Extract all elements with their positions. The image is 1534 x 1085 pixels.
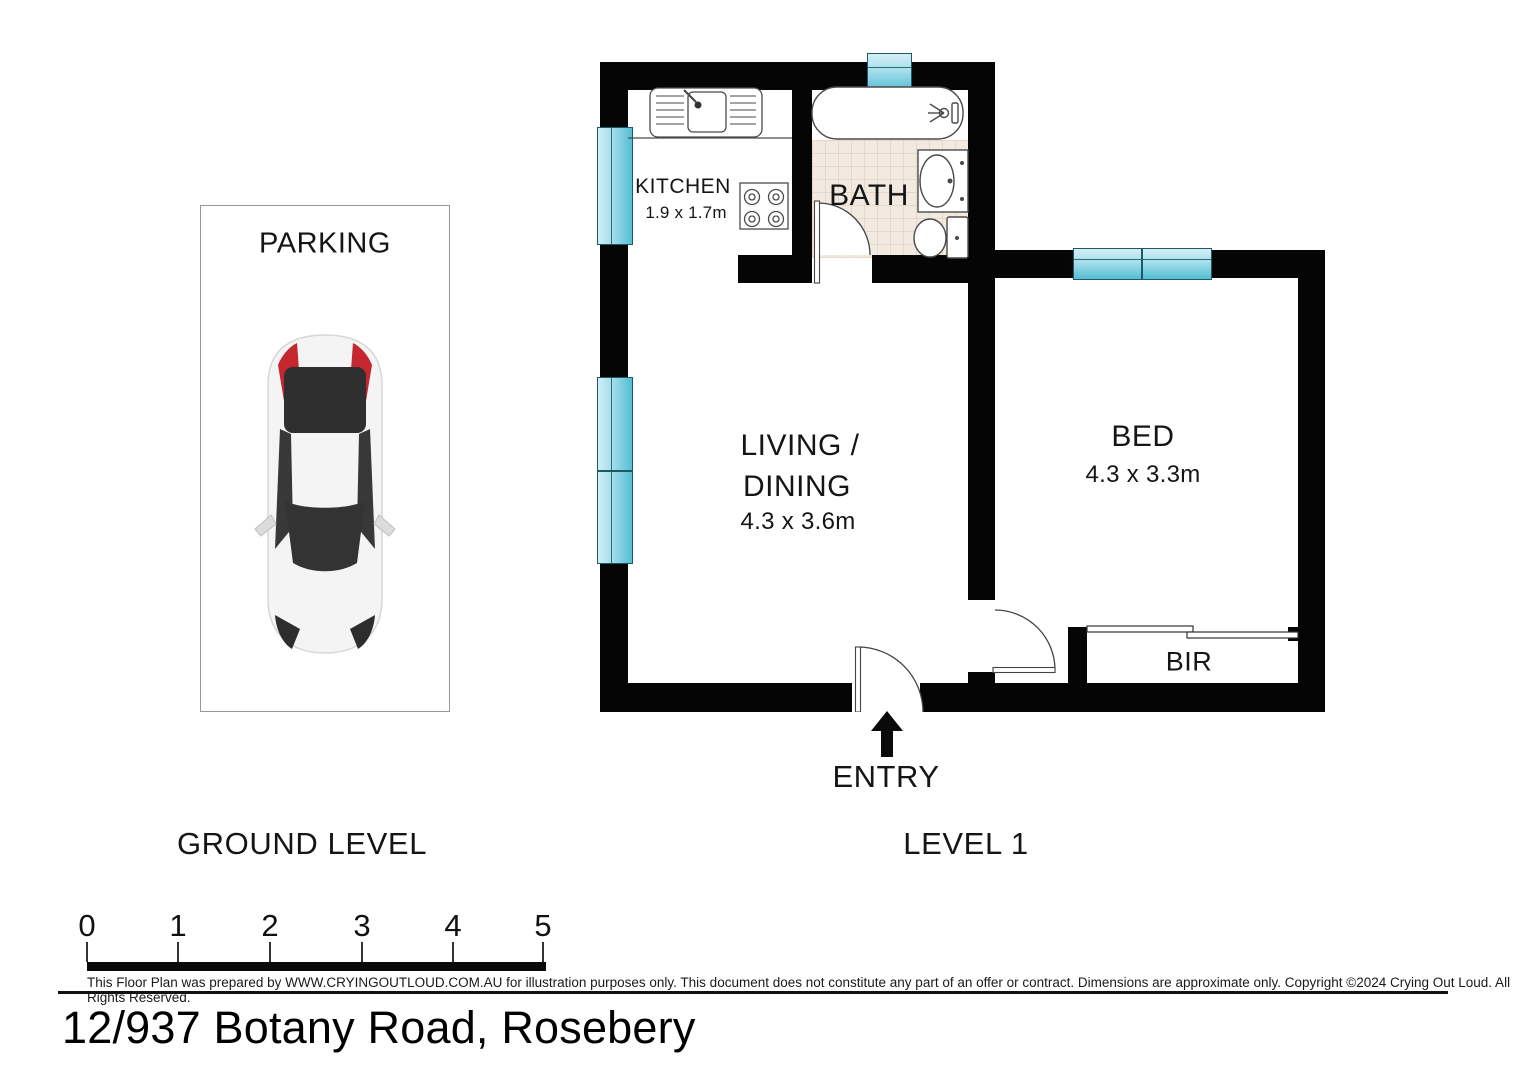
scale-tick — [361, 942, 363, 962]
floorplan-level1: KITCHEN 1.9 x 1.7m BATH LIVING / DINING … — [600, 62, 1325, 712]
parking-space: PARKING — [200, 205, 450, 712]
scale-tick — [269, 942, 271, 962]
car-rear-window — [284, 367, 366, 433]
entry-door — [856, 647, 924, 712]
scale-number-1: 1 — [169, 908, 186, 944]
level1-caption: LEVEL 1 — [903, 826, 1028, 862]
bir-label: BIR — [1166, 647, 1213, 678]
kitchen-sink — [650, 88, 762, 137]
bath-label: BATH — [829, 179, 909, 213]
bed-window — [1073, 248, 1212, 280]
entry-arrow-icon — [871, 711, 903, 757]
bed-door — [993, 610, 1055, 673]
kitchen-window — [597, 127, 633, 245]
ground-level-caption: GROUND LEVEL — [177, 826, 427, 862]
scale-tick — [86, 942, 88, 962]
scale-number-5: 5 — [534, 908, 551, 944]
wall-bath-bed-vertical — [968, 90, 995, 600]
scale-number-4: 4 — [444, 908, 461, 944]
scale-number-3: 3 — [353, 908, 370, 944]
stove-cooktop — [740, 183, 788, 229]
bed-dimensions: 4.3 x 3.3m — [1085, 461, 1200, 489]
bed-label: BED — [1111, 420, 1174, 454]
kitchen-dimensions: 1.9 x 1.7m — [645, 203, 726, 223]
bath-window — [867, 53, 912, 92]
wall-right — [1298, 250, 1325, 712]
scale-tick — [452, 942, 454, 962]
wall-bottom-left — [600, 683, 852, 712]
car-top-view-illustration — [251, 331, 399, 656]
footer-divider-line — [58, 991, 1448, 994]
bathtub — [812, 87, 963, 139]
wall-bir-left-stub — [1068, 627, 1087, 687]
disclaimer-text: This Floor Plan was prepared by WWW.CRYI… — [87, 975, 1534, 1005]
kitchen-label: KITCHEN — [635, 175, 731, 199]
scale-number-2: 2 — [261, 908, 278, 944]
scale-tick — [177, 942, 179, 962]
scale-tick — [542, 942, 544, 962]
car-windshield — [285, 501, 365, 571]
living-dimensions: 4.3 x 3.6m — [740, 508, 855, 536]
scale-number-0: 0 — [78, 908, 95, 944]
wall-top — [600, 62, 995, 90]
wall-kitchen-bottom — [738, 255, 812, 283]
wall-bed-door-stub — [968, 672, 995, 712]
living-label-line1: LIVING / — [740, 429, 859, 463]
parking-label: PARKING — [259, 228, 391, 261]
wall-bath-bottom — [872, 255, 995, 283]
address-title: 12/937 Botany Road, Rosebery — [62, 1002, 696, 1054]
entry-label: ENTRY — [832, 759, 939, 795]
wall-bir-right-stub — [1288, 627, 1298, 641]
scale-bar-line — [87, 962, 546, 971]
bir-sliding-doors — [1087, 626, 1298, 638]
living-window — [597, 377, 633, 564]
living-label-line2: DINING — [743, 470, 851, 504]
